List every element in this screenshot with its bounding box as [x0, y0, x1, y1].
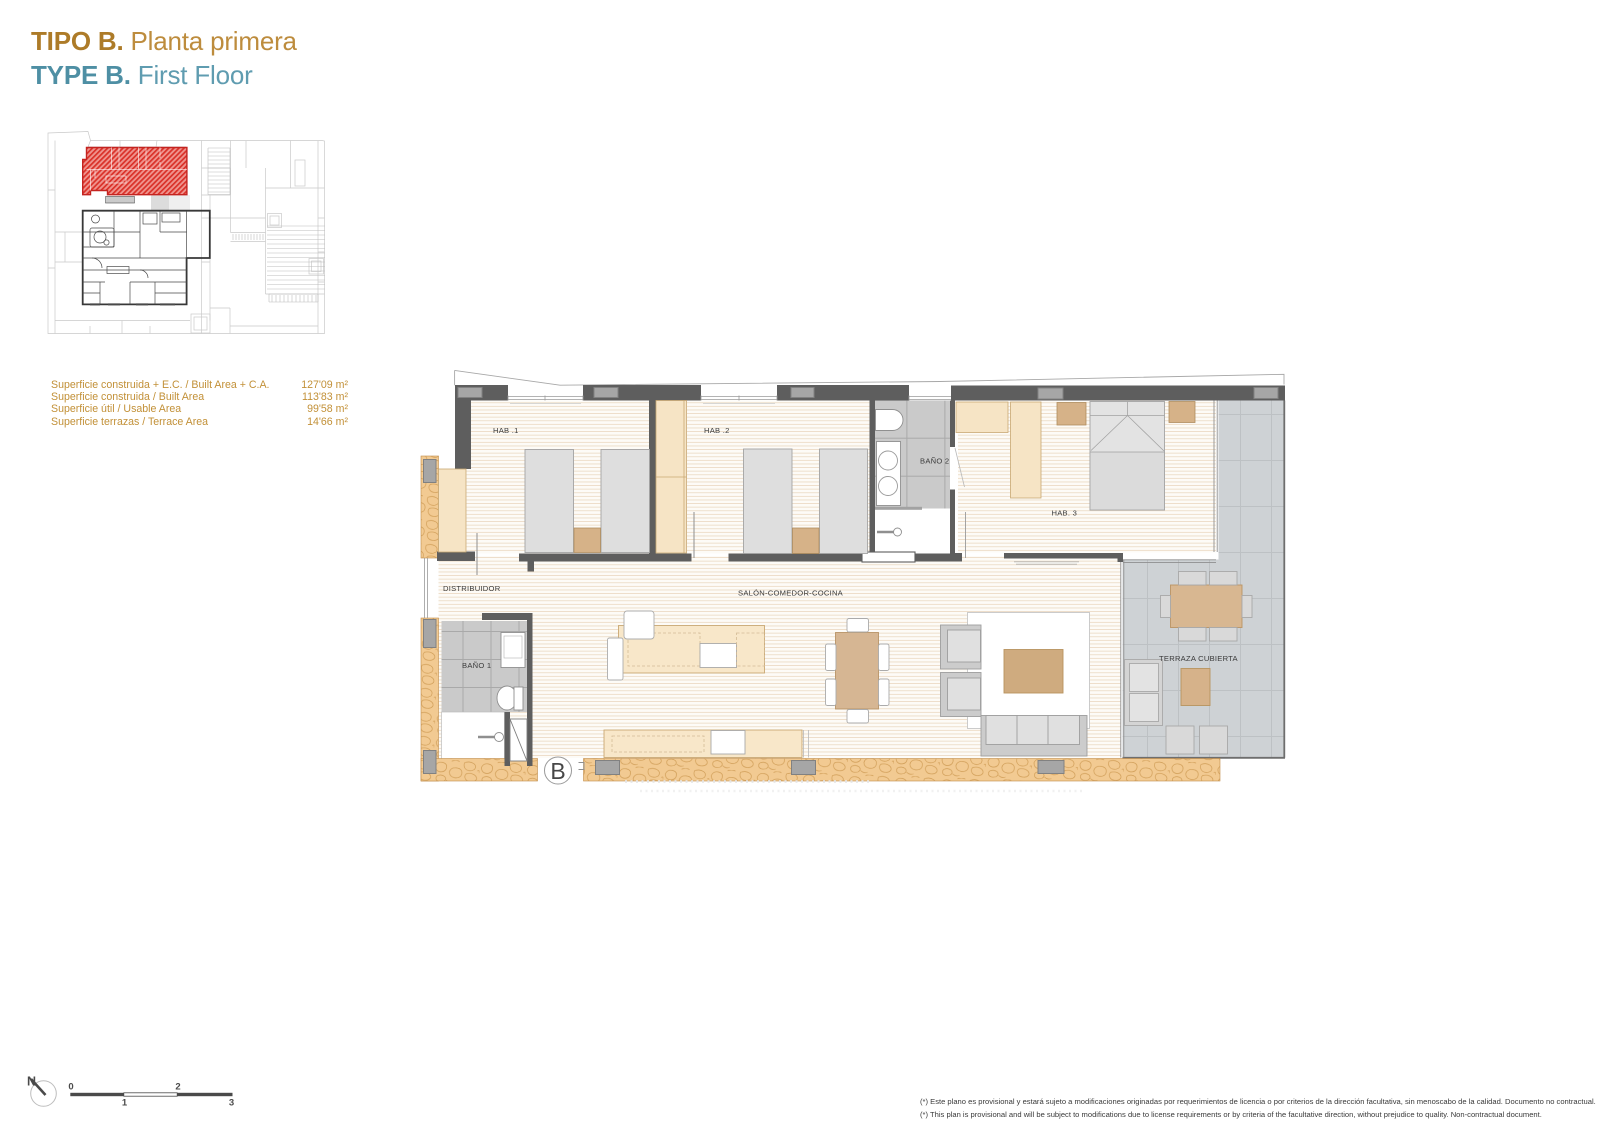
svg-text:1: 1: [122, 1098, 128, 1109]
svg-text:N: N: [27, 1075, 36, 1089]
svg-text:BAÑO 1: BAÑO 1: [462, 661, 491, 670]
svg-text:TERRAZA CUBIERTA: TERRAZA CUBIERTA: [1159, 654, 1239, 663]
svg-text:0: 0: [68, 1082, 73, 1093]
svg-text:SALÓN-COMEDOR-COCINA: SALÓN-COMEDOR-COCINA: [738, 589, 844, 598]
svg-text:B: B: [550, 758, 565, 784]
svg-text:BAÑO 2: BAÑO 2: [920, 457, 949, 466]
svg-text:HAB .2: HAB .2: [704, 426, 730, 435]
svg-text:HAB. 3: HAB. 3: [1052, 509, 1078, 518]
svg-text:3: 3: [229, 1098, 234, 1109]
svg-text:2: 2: [175, 1082, 180, 1093]
svg-text:HAB .1: HAB .1: [493, 426, 519, 435]
svg-text:DISTRIBUIDOR: DISTRIBUIDOR: [443, 584, 501, 593]
